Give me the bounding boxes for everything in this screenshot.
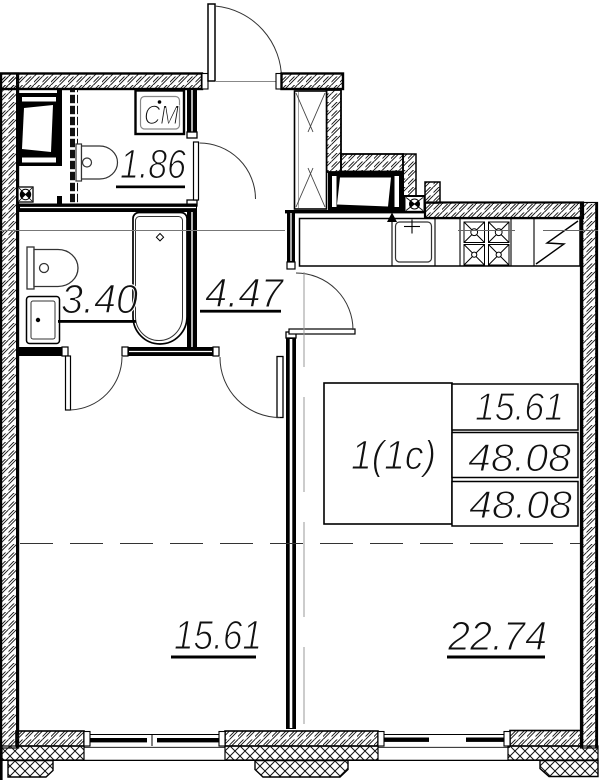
svg-text:22.74: 22.74 <box>447 613 547 659</box>
svg-text:15.61: 15.61 <box>475 386 564 429</box>
svg-text:48.08: 48.08 <box>468 437 571 480</box>
svg-text:1.86: 1.86 <box>120 141 186 187</box>
svg-text:15.61: 15.61 <box>174 612 262 658</box>
svg-text:4.47: 4.47 <box>205 270 285 316</box>
svg-text:СМ: СМ <box>144 100 179 130</box>
svg-text:48.08: 48.08 <box>469 484 572 527</box>
svg-text:1(1с): 1(1с) <box>351 432 436 478</box>
svg-text:3.40: 3.40 <box>61 276 138 322</box>
